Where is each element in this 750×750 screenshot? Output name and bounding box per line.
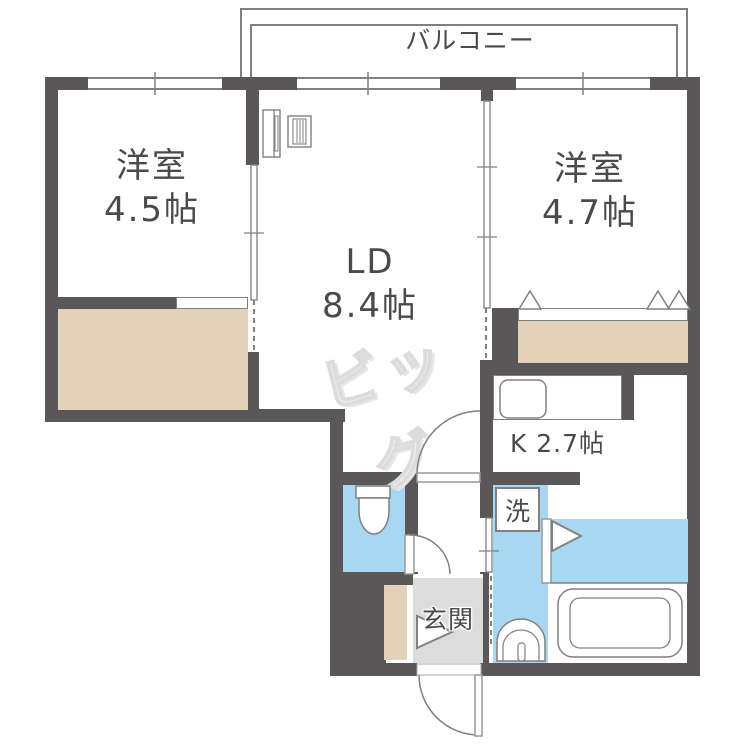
balcony-label: バルコニー <box>390 27 550 55</box>
cabinet-icon <box>263 110 280 157</box>
toilet-bowl-icon <box>359 498 389 534</box>
door-leaf-entrance <box>475 675 482 736</box>
bedroom-right-size: 4.7帖 <box>520 191 660 235</box>
door-leaf-toilet <box>405 535 414 574</box>
door-arc-toilet <box>410 535 450 574</box>
bedroom-right-name: 洋室 <box>520 147 660 191</box>
kitchen-sink-icon <box>500 380 546 418</box>
entrance-label: 玄関 <box>410 606 486 634</box>
closet-door-triangle-icon <box>519 291 541 309</box>
entrance-door-opening <box>417 664 481 675</box>
kitchen-label: K 2.7帖 <box>495 430 620 458</box>
bedroom-left-name: 洋室 <box>82 144 222 188</box>
sliding-door-washroom <box>486 518 492 572</box>
living-dining-size: 8.4帖 <box>300 284 440 328</box>
door-arc-living <box>417 411 480 474</box>
bedroom-right-label: 洋室 4.7帖 <box>520 147 660 235</box>
closet-door-triangle-icon <box>668 291 690 309</box>
living-dining-name: LD <box>300 240 440 284</box>
floorplan: ビッグ <box>0 0 750 750</box>
fixture-layer <box>0 0 750 750</box>
bedroom-left-label: 洋室 4.5帖 <box>82 144 222 232</box>
closet-door-triangle-icon <box>647 291 669 309</box>
door-arc-entrance <box>419 675 479 735</box>
bedroom-left-size: 4.5帖 <box>82 188 222 232</box>
sliding-door-right-partition <box>484 101 490 308</box>
direction-arrow-washroom-icon <box>552 521 581 551</box>
door-leaf-living <box>417 473 480 482</box>
living-dining-label: LD 8.4帖 <box>300 240 440 328</box>
cabinet-handle <box>275 116 278 151</box>
door-leaf-washroom <box>542 519 551 583</box>
washbasin-faucet-icon <box>518 643 525 661</box>
toilet-tank-icon <box>356 486 390 498</box>
